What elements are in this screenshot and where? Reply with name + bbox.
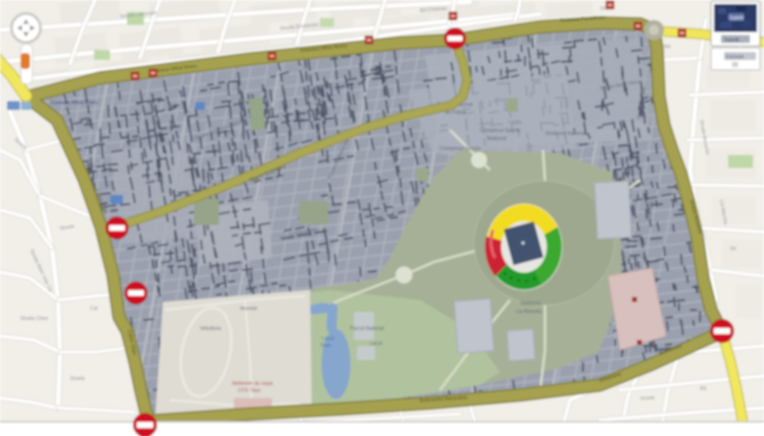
svg-text:Velodrom: Velodrom [200,326,221,332]
svg-text:National: National [488,136,506,142]
svg-text:Atelierele de repar.: Atelierele de repar. [232,381,274,387]
svg-text:Bd: Bd [700,386,706,392]
svg-text:Strada Chee: Strada Chee [20,316,48,322]
svg-text:Stadionul National: Stadionul National [545,131,586,137]
svg-text:Soseaua Mihai Bravu: Soseaua Mihai Bravu [50,100,98,106]
svg-text:CFR Titan: CFR Titan [238,388,261,394]
svg-text:Arenele: Arenele [240,306,257,312]
svg-text:Lia Manoliu: Lia Manoliu [516,309,542,315]
svg-text:Complexul Sportiv: Complexul Sportiv [440,146,481,152]
svg-text:Stadionul: Stadionul [520,301,541,307]
svg-text:Etichete: Etichete [726,55,744,61]
svg-text:Str: Str [730,246,737,252]
svg-text:Satelit: Satelit [730,16,745,22]
svg-text:Lacul: Lacul [370,341,382,347]
svg-text:Strada: Strada [640,395,655,402]
svg-text:Complexul Sportiv: Complexul Sportiv [480,128,521,134]
svg-text:Satelit: Satelit [724,38,740,44]
svg-text:de Fotbal: de Fotbal [445,110,466,116]
svg-text:Lacul: Lacul [322,336,334,342]
svg-text:Strada: Strada [70,376,85,382]
svg-text:Titan: Titan [320,343,331,349]
svg-text:Parcul National: Parcul National [350,326,384,332]
svg-text:Cal: Cal [90,306,98,312]
